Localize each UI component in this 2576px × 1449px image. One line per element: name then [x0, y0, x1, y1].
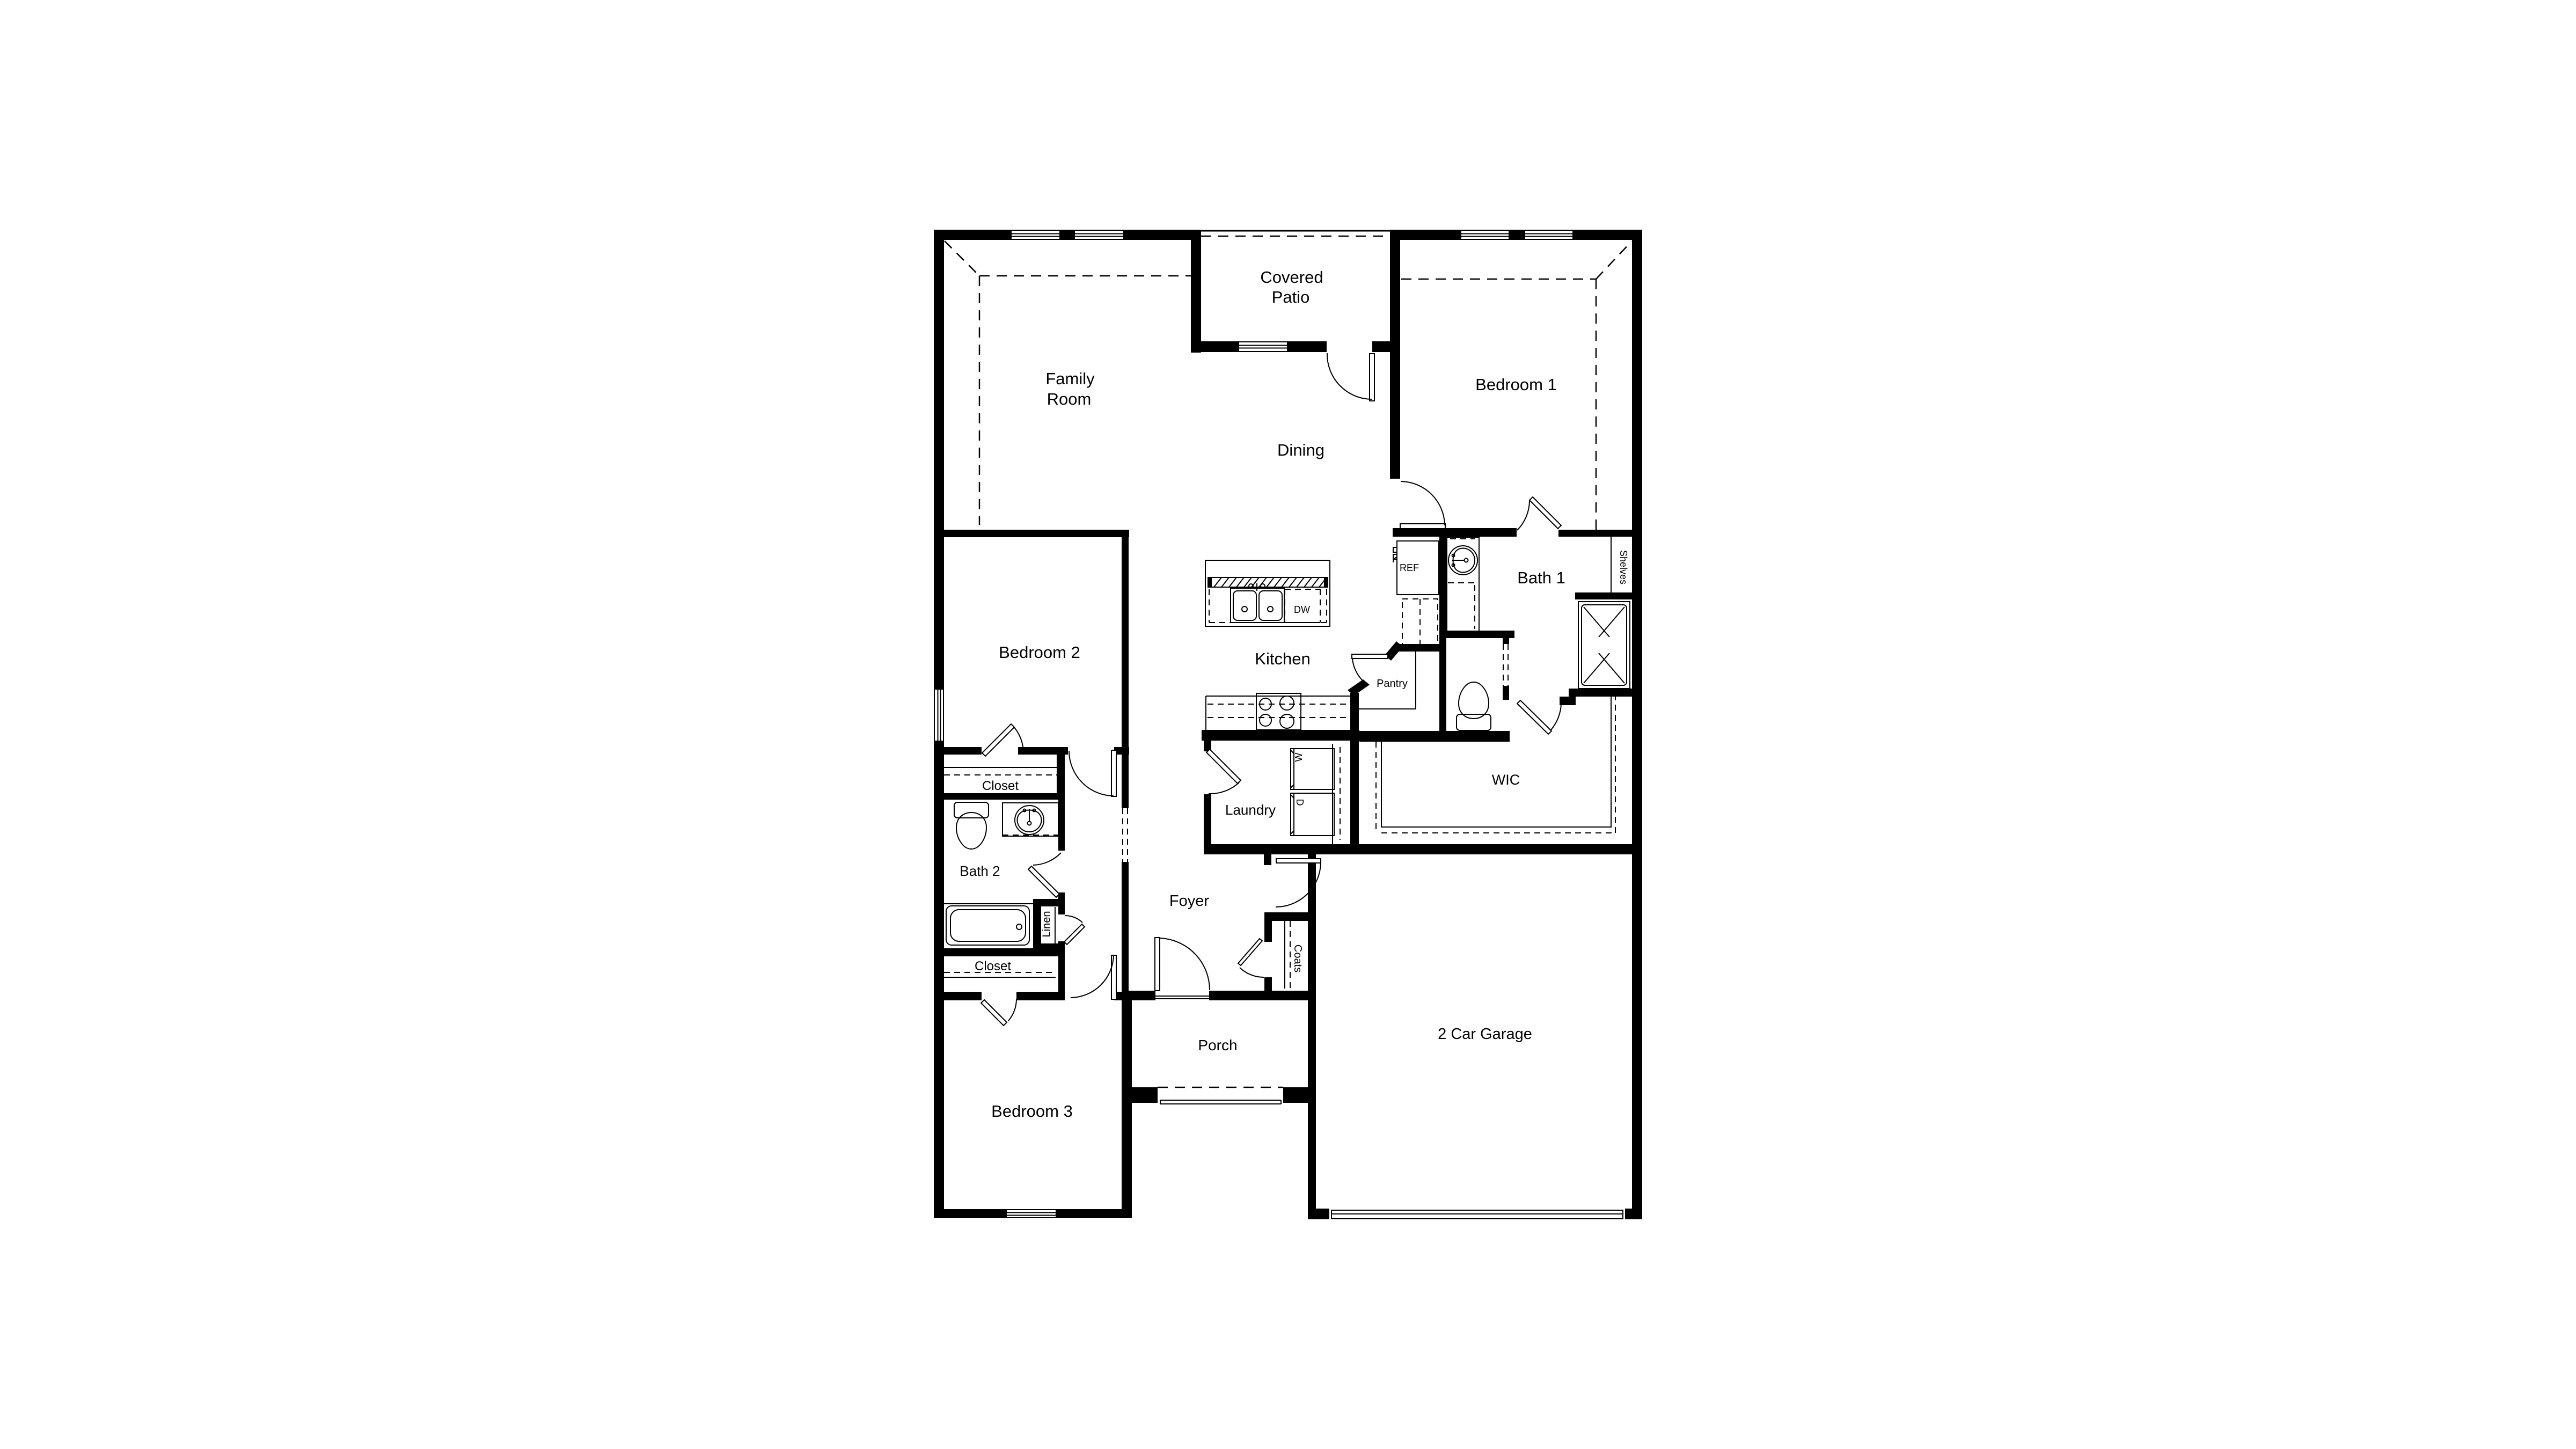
svg-text:Closet: Closet	[982, 779, 1019, 793]
svg-text:Covered: Covered	[1260, 268, 1323, 287]
svg-text:Bath 2: Bath 2	[960, 863, 1000, 879]
svg-text:Bath 1: Bath 1	[1517, 568, 1565, 587]
svg-text:Kitchen: Kitchen	[1255, 649, 1310, 668]
svg-text:Coats: Coats	[1292, 945, 1304, 972]
svg-text:Family: Family	[1045, 369, 1095, 388]
svg-text:Pantry: Pantry	[1377, 678, 1408, 690]
svg-text:Bedroom 1: Bedroom 1	[1475, 375, 1557, 394]
svg-text:Closet: Closet	[975, 959, 1011, 974]
svg-text:Laundry: Laundry	[1225, 802, 1276, 818]
svg-text:Bedroom 2: Bedroom 2	[999, 643, 1080, 662]
svg-text:Linen: Linen	[1041, 911, 1052, 938]
svg-text:Dining: Dining	[1277, 441, 1324, 459]
svg-text:Porch: Porch	[1198, 1037, 1237, 1053]
svg-text:Room: Room	[1047, 390, 1092, 408]
svg-text:W: W	[1293, 753, 1304, 762]
svg-text:D: D	[1294, 799, 1305, 806]
svg-text:Foyer: Foyer	[1169, 892, 1209, 910]
svg-text:Patio: Patio	[1272, 288, 1310, 306]
svg-text:Bedroom 3: Bedroom 3	[991, 1102, 1073, 1121]
svg-text:Shelves: Shelves	[1618, 550, 1629, 584]
svg-text:REF: REF	[1400, 562, 1419, 573]
svg-text:WIC: WIC	[1492, 772, 1520, 788]
svg-text:DW: DW	[1294, 604, 1310, 615]
svg-text:2 Car Garage: 2 Car Garage	[1438, 1026, 1532, 1043]
